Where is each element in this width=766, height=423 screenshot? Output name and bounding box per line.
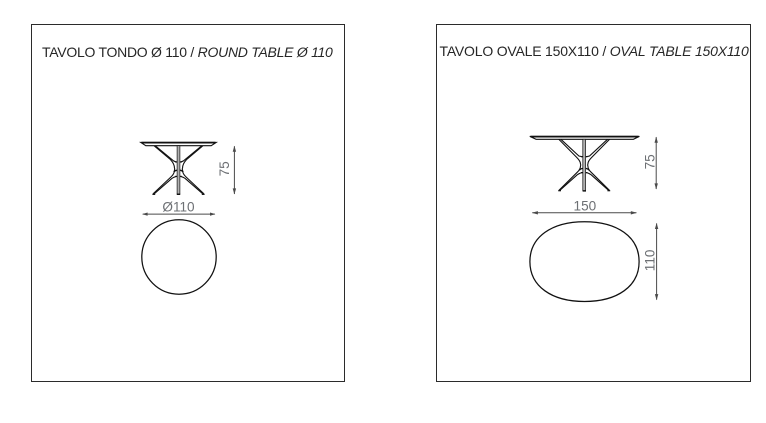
svg-text:150: 150	[574, 198, 597, 213]
svg-text:110: 110	[643, 249, 658, 271]
svg-text:75: 75	[217, 161, 232, 176]
svg-text:75: 75	[642, 154, 657, 169]
svg-text:Ø110: Ø110	[162, 200, 195, 215]
